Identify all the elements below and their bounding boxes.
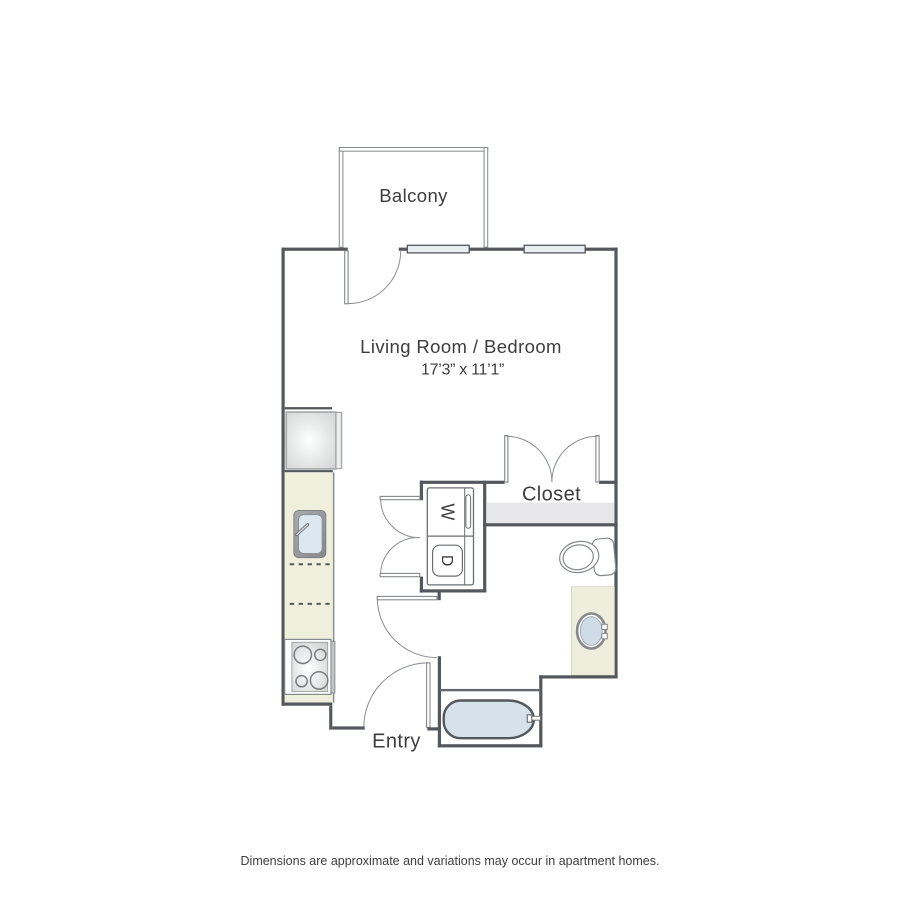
- svg-text:W: W: [438, 503, 458, 520]
- svg-text:Living Room / Bedroom: Living Room / Bedroom: [360, 336, 562, 357]
- svg-text:Balcony: Balcony: [379, 185, 448, 206]
- svg-text:Closet: Closet: [522, 483, 581, 505]
- svg-text:D: D: [438, 555, 455, 567]
- svg-text:Dimensions are approximate and: Dimensions are approximate and variation…: [241, 854, 660, 868]
- svg-text:Entry: Entry: [372, 731, 421, 753]
- svg-text:17’3” x 11’1”: 17’3” x 11’1”: [421, 361, 504, 378]
